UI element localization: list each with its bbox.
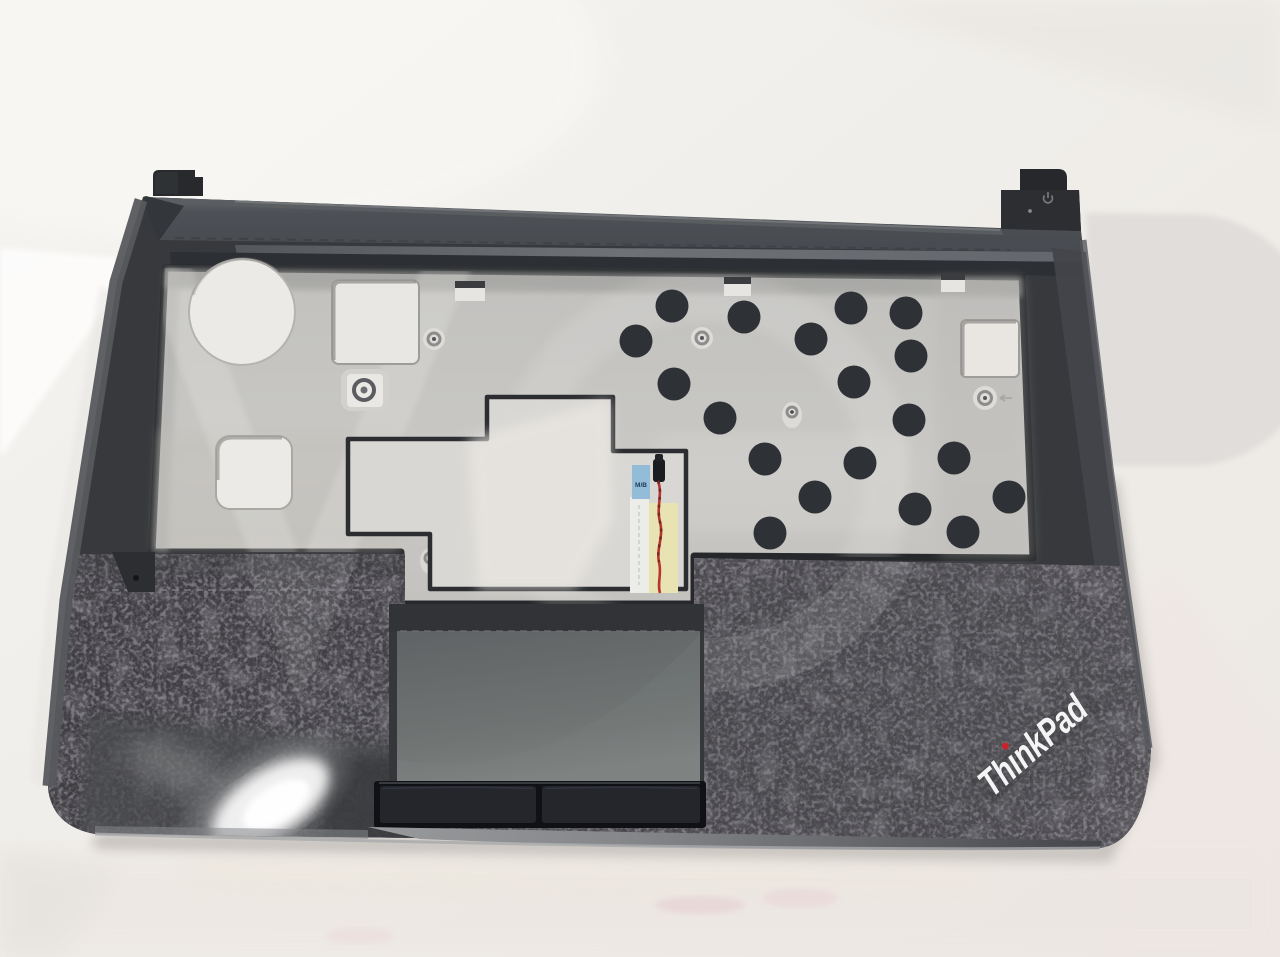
- svg-text:M/B: M/B: [635, 482, 647, 489]
